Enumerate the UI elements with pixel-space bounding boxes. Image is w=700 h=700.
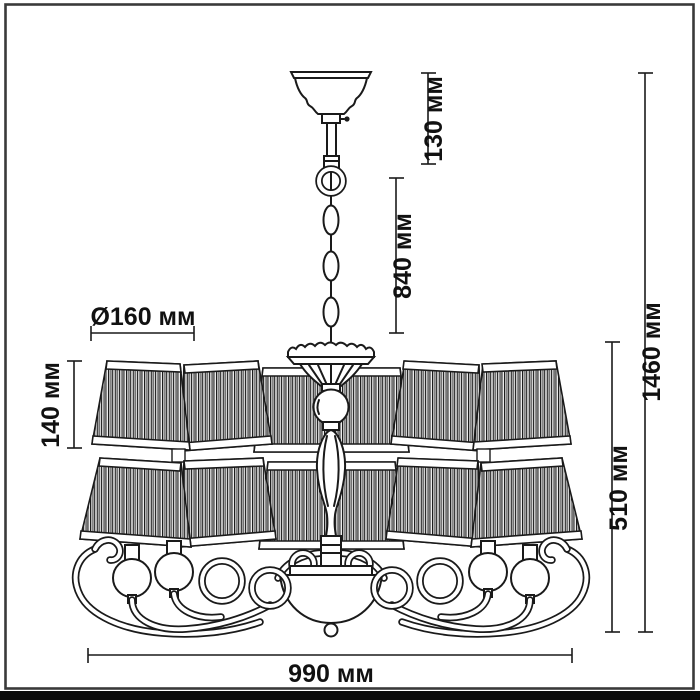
lampshade bbox=[80, 458, 191, 547]
dimension-label: 990 мм bbox=[288, 660, 374, 688]
bulb-globe bbox=[155, 553, 193, 591]
lampshade bbox=[386, 458, 482, 547]
lampshade bbox=[180, 458, 276, 547]
dimension-canopy-height: 130 мм bbox=[420, 73, 448, 164]
bowl-finial bbox=[325, 624, 338, 637]
dimension-label: 140 мм bbox=[37, 362, 65, 448]
dimension-label: Ø160 мм bbox=[90, 303, 195, 331]
dimension-label: 1460 мм bbox=[638, 302, 666, 402]
dimension-label: 840 мм bbox=[389, 213, 417, 299]
lampshade bbox=[473, 361, 571, 450]
dimension-fixture-width: 990 мм bbox=[88, 648, 572, 688]
lampshade bbox=[181, 361, 272, 451]
suspension-chain bbox=[319, 123, 343, 348]
bulb-globe bbox=[511, 559, 549, 597]
bottom-black-bar bbox=[0, 691, 700, 700]
bulb-globe bbox=[469, 553, 507, 591]
lampshade bbox=[92, 361, 190, 450]
chandelier-dimension-drawing: 130 мм 840 мм 1460 мм 510 мм Ø160 мм 140… bbox=[0, 0, 700, 700]
bulb-globe bbox=[113, 559, 151, 597]
dimension-chain-drop: 840 мм bbox=[389, 178, 417, 333]
lampshade bbox=[391, 361, 482, 451]
dimension-fixture-height: 510 мм bbox=[605, 342, 633, 632]
dimension-label: 510 мм bbox=[605, 445, 633, 531]
lampshade bbox=[471, 458, 582, 547]
dimension-total-height: 1460 мм bbox=[638, 73, 666, 632]
dimension-shade-diameter: Ø160 мм bbox=[90, 303, 195, 341]
ceiling-canopy bbox=[291, 72, 371, 123]
dimension-shade-height: 140 мм bbox=[37, 361, 82, 448]
dimension-label: 130 мм bbox=[420, 76, 448, 162]
drawing-canvas: 130 мм 840 мм 1460 мм 510 мм Ø160 мм 140… bbox=[0, 0, 700, 700]
bottom-bowl bbox=[280, 536, 382, 637]
canopy-screw-icon bbox=[344, 116, 349, 121]
